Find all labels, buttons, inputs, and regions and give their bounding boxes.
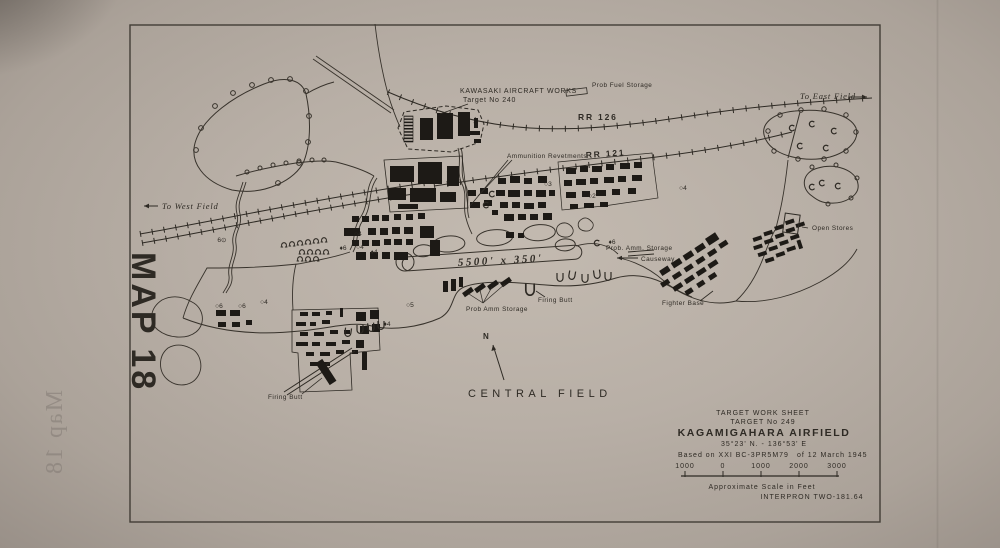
map-number-label: MAP 18 [124, 252, 162, 392]
field-marker: ○5 [406, 302, 414, 309]
open-stores-label: Open Stores [812, 225, 853, 232]
field-marker: ○6 [238, 303, 246, 310]
scale-tick-label: 1000 [751, 463, 771, 470]
causeway-label: Causeway [641, 256, 675, 263]
rr-126-label: RR 126 [578, 112, 618, 122]
fighter-base-label: Fighter Base [662, 300, 704, 307]
dispersal-area-northwest [194, 77, 374, 192]
dispersal-area-east [764, 107, 859, 206]
building-cluster-northeast [749, 216, 813, 266]
field-marker: ○4 [260, 299, 268, 306]
prob-fuel-storage-label: Prob Fuel Storage [592, 82, 652, 89]
causeway-arrow [617, 256, 638, 260]
field-marker: ♦4 [383, 321, 390, 328]
rr-121-label: RR 121 [585, 147, 625, 160]
to-east-field-label: To East Field [800, 91, 856, 101]
field-marker: ○4 [679, 185, 687, 192]
building-cluster-central [468, 176, 555, 238]
title-date: of 12 March 1945 [797, 452, 867, 459]
field-marker: ○2 [588, 193, 596, 200]
field-marker: ○6 [215, 303, 223, 310]
label-leader-lines [440, 88, 713, 301]
firing-butt-west-structure [284, 348, 355, 395]
to-west-field-label: To West Field [162, 201, 219, 211]
scale-bar: 1000 0 1000 2000 3000 [675, 463, 847, 477]
field-marker: ○3 [544, 181, 552, 188]
firing-butt-west-label: Firing Butt [268, 394, 303, 401]
west-field-arrow [144, 204, 158, 209]
scale-caption: Approximate Scale in Feet [708, 484, 815, 491]
scale-tick-label: 3000 [827, 463, 847, 470]
prob-amm-storage-south-structures [462, 277, 512, 303]
scale-tick-label: 0 [721, 463, 726, 470]
building-cluster-factory-upper [404, 112, 481, 143]
north-arrow [491, 345, 504, 380]
field-marker: 6⊙ [217, 237, 227, 244]
field-marker: ○4 [354, 231, 362, 238]
field-marker: ♦6 [339, 245, 346, 252]
map-canvas: KAWASAKI AIRCRAFT WORKS Target No 240 Pr… [0, 0, 1000, 548]
scale-tick-label: 1000 [675, 463, 695, 470]
central-field-label: CENTRAL FIELD [468, 388, 612, 400]
kawasaki-target-label: Target No 240 [463, 97, 516, 104]
prob-amm-storage-north-label: Prob. Amm. Storage [606, 245, 673, 252]
scanned-map-page: Map 18 [0, 0, 1000, 548]
title-line1: TARGET WORK SHEET [716, 410, 810, 417]
field-marker: ♦4 [370, 249, 377, 256]
kawasaki-works-label: KAWASAKI AIRCRAFT WORKS [460, 88, 577, 95]
field-marker: ♦6 [608, 239, 615, 246]
ammunition-revetments-label: Ammunition Revetments [507, 153, 587, 160]
title-airfield-name: KAGAMIGAHARA AIRFIELD [678, 427, 851, 439]
title-coordinates: 35°23' N. - 136°53' E [721, 440, 807, 448]
credit-line: INTERPRON TWO-181.64 [760, 494, 863, 501]
prob-amm-storage-south-label: Prob Amm Storage [466, 306, 528, 313]
firing-butt-east-label: Firing Butt [538, 297, 573, 304]
field-marker: ○4 [356, 244, 364, 251]
scale-tick-label: 2000 [789, 463, 809, 470]
building-cluster-factory-lower [388, 162, 459, 209]
building-cluster-fighter-base [653, 230, 740, 305]
title-block: TARGET WORK SHEET TARGET No 249 KAGAMIGA… [675, 410, 867, 501]
north-label: N [483, 332, 489, 341]
runway-dimensions-label: 5500' x 350' [458, 253, 544, 269]
title-based-on: Based on XXI BC-3PR5M79 [678, 452, 789, 459]
title-line2: TARGET No 249 [730, 419, 795, 426]
